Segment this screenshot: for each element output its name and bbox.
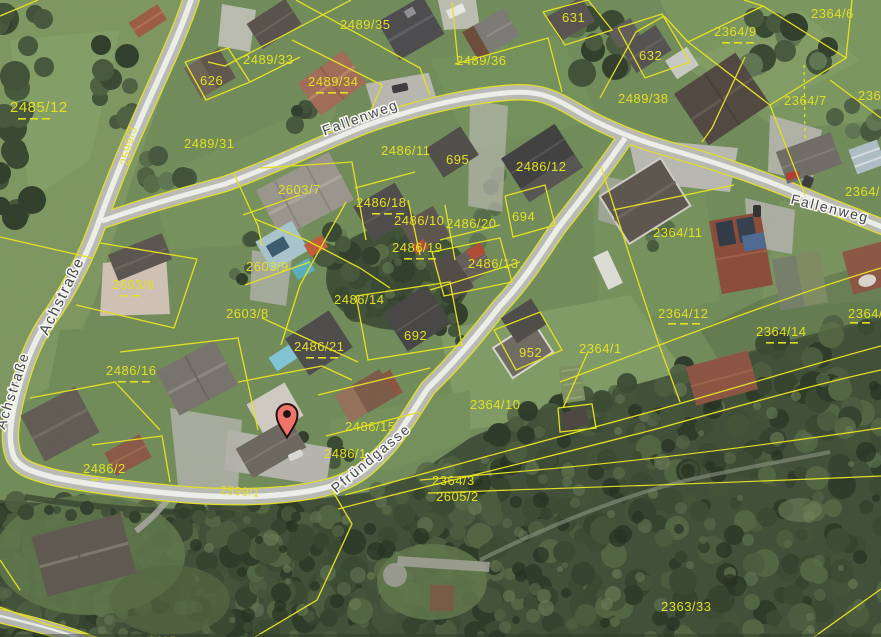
- svg-text:2603/7: 2603/7: [278, 182, 321, 197]
- svg-text:695: 695: [446, 152, 469, 167]
- svg-text:2364/1: 2364/1: [579, 341, 622, 356]
- svg-text:2363/33: 2363/33: [661, 599, 712, 614]
- svg-text:2603/6: 2603/6: [112, 277, 155, 292]
- svg-text:626: 626: [200, 73, 223, 88]
- svg-text:694: 694: [512, 209, 535, 224]
- svg-text:2486/18: 2486/18: [356, 195, 407, 210]
- svg-text:2486/20: 2486/20: [446, 216, 497, 231]
- svg-text:2599/1: 2599/1: [220, 483, 261, 500]
- svg-text:2486/10: 2486/10: [394, 213, 445, 228]
- svg-text:2603/8: 2603/8: [226, 306, 269, 321]
- svg-text:2489/36: 2489/36: [456, 53, 507, 68]
- svg-text:2364/14: 2364/14: [756, 324, 807, 339]
- svg-text:2489/33: 2489/33: [243, 52, 294, 67]
- svg-text:2486/2: 2486/2: [83, 461, 126, 476]
- svg-text:2364/9: 2364/9: [714, 24, 757, 39]
- svg-text:2603/9: 2603/9: [246, 259, 289, 274]
- svg-text:2485/12: 2485/12: [10, 99, 68, 116]
- svg-text:631: 631: [562, 10, 585, 25]
- svg-text:2486/12: 2486/12: [516, 159, 567, 174]
- svg-text:2364/11: 2364/11: [653, 225, 703, 240]
- svg-text:632: 632: [639, 48, 662, 63]
- svg-text:2489/38: 2489/38: [618, 91, 669, 106]
- svg-text:2489/35: 2489/35: [340, 17, 391, 32]
- svg-text:2605/2: 2605/2: [436, 489, 479, 504]
- svg-text:2364/10: 2364/10: [470, 397, 521, 412]
- svg-text:2364/7: 2364/7: [784, 93, 827, 108]
- svg-text:2486/21: 2486/21: [294, 339, 345, 354]
- svg-text:2486/13: 2486/13: [468, 256, 519, 271]
- svg-text:2486/16: 2486/16: [106, 363, 157, 378]
- svg-text:2364/: 2364/: [858, 88, 881, 103]
- svg-text:2364/3: 2364/3: [432, 473, 475, 488]
- svg-text:952: 952: [519, 345, 542, 360]
- svg-text:2486/15: 2486/15: [345, 419, 396, 434]
- svg-text:2364/: 2364/: [845, 184, 880, 199]
- svg-text:2364/6: 2364/6: [811, 6, 854, 21]
- svg-text:2486/14: 2486/14: [334, 292, 385, 307]
- svg-text:2489/34: 2489/34: [308, 74, 359, 89]
- svg-text:2489/31: 2489/31: [184, 136, 235, 151]
- svg-text:692: 692: [404, 328, 427, 343]
- svg-text:2364/12: 2364/12: [658, 306, 709, 321]
- svg-text:2486/19: 2486/19: [392, 240, 443, 255]
- svg-text:2364/1: 2364/1: [848, 306, 881, 321]
- svg-text:2486/11: 2486/11: [381, 143, 431, 158]
